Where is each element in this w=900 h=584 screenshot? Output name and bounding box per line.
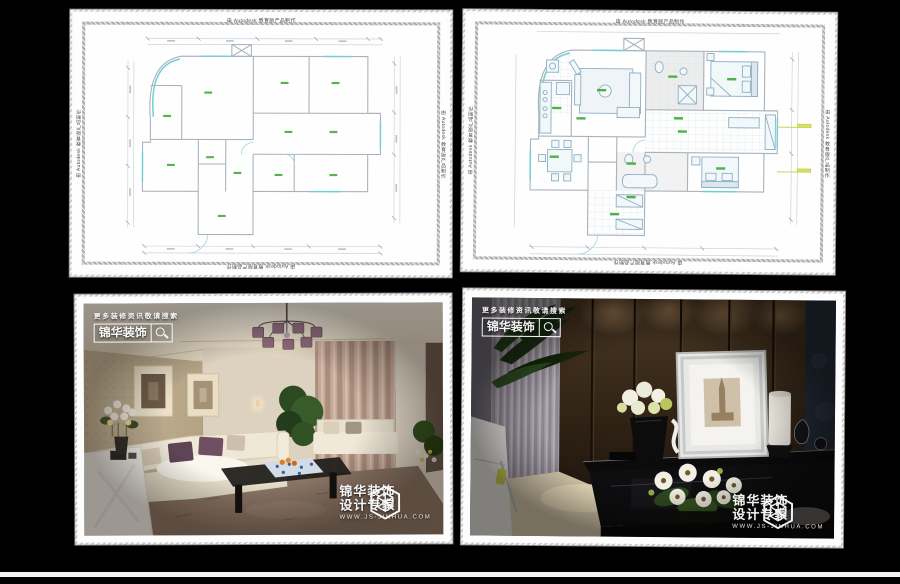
autodesk-watermark-top: 由 Autodesk 教育版产品制作 bbox=[227, 19, 296, 24]
panel-living-room-photo[interactable]: 更多装修资讯敬请搜索 锦华装饰 锦华装饰 设计专家 bbox=[75, 293, 453, 544]
windows bbox=[142, 56, 380, 192]
watermark-search: 更多装修资讯敬请搜索 锦华装饰 bbox=[94, 311, 179, 342]
hexagon-emblem-icon bbox=[339, 484, 431, 520]
page-bottom-strip bbox=[0, 572, 900, 577]
panel-tv-wall-photo[interactable]: 更多装修资讯敬请搜索 锦华装饰 锦华装饰 设计专家 bbox=[461, 288, 845, 547]
magnifier-icon bbox=[152, 324, 172, 341]
autodesk-watermark-top: 由 Autodesk 教育版产品制作 bbox=[616, 20, 685, 26]
cad-sheet: 由 Autodesk 教育版产品制作 由 Autodesk 教育版产品制作 由 … bbox=[467, 15, 831, 268]
floor-plan-original-drawing bbox=[88, 27, 434, 261]
search-hint-text: 更多装修资讯敬请搜索 bbox=[94, 311, 179, 321]
living-room-photo: 更多装修资讯敬请搜索 锦华装饰 锦华装饰 设计专家 bbox=[84, 302, 444, 535]
brand-name: 锦华装饰 bbox=[483, 319, 540, 336]
collage-canvas: 由 Autodesk 教育版产品制作 由 Autodesk 教育版产品制作 由 … bbox=[0, 0, 900, 584]
tv-wall-photo: 更多装修资讯敬请搜索 锦华装饰 锦华装饰 设计专家 bbox=[470, 297, 836, 538]
hexagon-emblem-icon bbox=[732, 494, 824, 531]
autodesk-watermark-left: 由 Autodesk 教育版产品制作 bbox=[469, 106, 475, 175]
autodesk-watermark-right: 由 Autodesk 教育版产品制作 bbox=[824, 109, 830, 178]
autodesk-watermark-left: 由 Autodesk 教育版产品制作 bbox=[77, 109, 82, 178]
brand-search-box: 锦华装饰 bbox=[482, 318, 561, 338]
autodesk-watermark-bottom: 由 Autodesk 教育版产品制作 bbox=[226, 263, 295, 268]
dimension-lines bbox=[126, 37, 401, 256]
watermark-logo: 锦华装饰 设计专家 WWW.JS-JINHUA.COM bbox=[732, 494, 824, 531]
search-hint-text: 更多装修资讯敬请搜索 bbox=[482, 306, 567, 317]
panel-floor-plan-furnished[interactable]: 由 Autodesk 教育版产品制作 由 Autodesk 教育版产品制作 由 … bbox=[461, 9, 837, 275]
walls bbox=[142, 44, 380, 234]
doors bbox=[188, 142, 294, 253]
cad-sheet: 由 Autodesk 教育版产品制作 由 Autodesk 教育版产品制作 由 … bbox=[76, 16, 447, 272]
watermark-search: 更多装修资讯敬请搜索 锦华装饰 bbox=[482, 306, 567, 338]
autodesk-watermark-right: 由 Autodesk 教育版产品制作 bbox=[440, 109, 445, 178]
brand-search-box: 锦华装饰 bbox=[94, 323, 173, 342]
annotation-leaders bbox=[777, 124, 811, 172]
watermark-logo: 锦华装饰 设计专家 WWW.JS-JINHUA.COM bbox=[339, 484, 431, 520]
magnifier-icon bbox=[540, 319, 560, 336]
floor-plan-furnished-drawing bbox=[479, 26, 819, 257]
panel-floor-plan-original[interactable]: 由 Autodesk 教育版产品制作 由 Autodesk 教育版产品制作 由 … bbox=[70, 10, 453, 278]
brand-name: 锦华装饰 bbox=[95, 324, 152, 341]
room-labels bbox=[163, 82, 340, 218]
autodesk-watermark-bottom: 由 Autodesk 教育版产品制作 bbox=[613, 259, 682, 265]
